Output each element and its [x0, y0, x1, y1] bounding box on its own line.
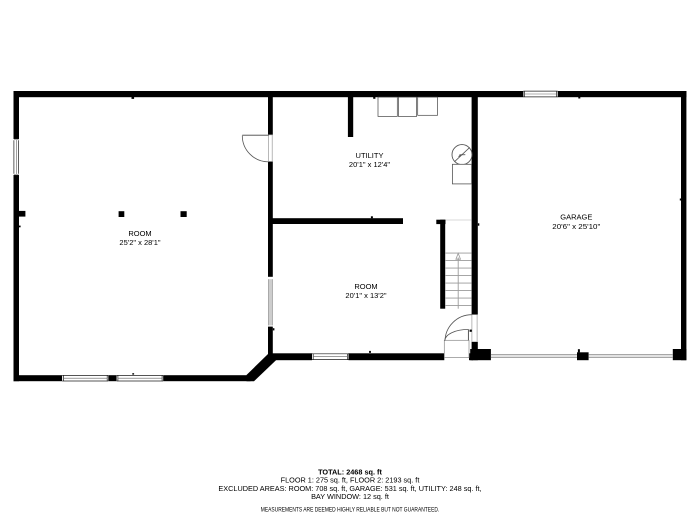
svg-text:MEASUREMENTS ARE DEEMED HIGHLY: MEASUREMENTS ARE DEEMED HIGHLY RELIABLE … — [261, 506, 440, 513]
svg-text:25'2" x 28'1": 25'2" x 28'1" — [119, 238, 160, 247]
svg-text:20'1" x 12'4": 20'1" x 12'4" — [349, 160, 390, 169]
svg-text:GARAGE: GARAGE — [560, 213, 592, 222]
svg-text:20'1" x 13'2": 20'1" x 13'2" — [345, 291, 386, 300]
svg-text:BAY WINDOW: 12 sq. ft: BAY WINDOW: 12 sq. ft — [311, 492, 389, 501]
svg-text:20'6" x 25'10": 20'6" x 25'10" — [552, 222, 600, 231]
svg-text:ROOM: ROOM — [354, 282, 377, 291]
svg-text:UTILITY: UTILITY — [356, 151, 384, 160]
svg-text:ROOM: ROOM — [128, 229, 151, 238]
